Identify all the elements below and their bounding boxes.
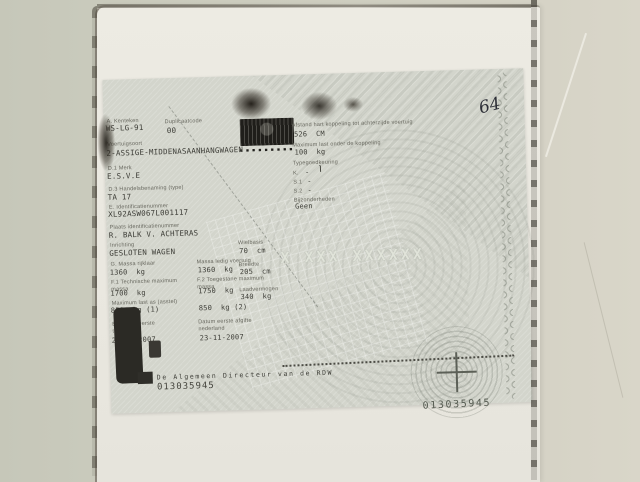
ghost-watermark-text: X XXX XXXXXX <box>280 247 425 266</box>
bijzonderheden-value: Geen <box>295 203 313 211</box>
laadvermogen-value: 340 kg <box>240 293 271 302</box>
security-stamp <box>240 118 295 146</box>
datum-afgifte-label: Datum eerste afgifte nederland <box>198 317 266 332</box>
k-label: K. <box>293 170 299 177</box>
tick-mark <box>320 166 321 172</box>
field-voertuigsoort-value: 2-ASSIGE-MIDDENASAANHANGWAGEN <box>106 146 243 158</box>
wielbasis-value: 70 cm <box>239 247 266 255</box>
s2-value: - <box>307 187 312 195</box>
document-number: 013035945 <box>157 381 215 393</box>
f1-value: 1700 kg <box>110 290 146 299</box>
typegoedkeuring-label: Typegoedkeuring <box>293 159 338 167</box>
dirt-stain <box>231 87 272 120</box>
s1-label: S.1 <box>293 179 302 186</box>
dirt-stain <box>96 114 116 172</box>
field-duplicaatcode-label: Duplicaatcode <box>165 118 203 126</box>
afstand-koppeling-value: 526 CM <box>294 131 325 140</box>
stamp-dot-row: ▪▪▪▪▪▪▪▪▪ <box>239 146 295 155</box>
signature-block-mark <box>138 372 153 384</box>
dark-print-mark <box>149 340 161 357</box>
breedte-value: 205 cm <box>240 268 271 277</box>
f2-value: 1750 kg <box>198 287 234 296</box>
field-handelsbenaming-value: TA 17 <box>108 193 132 202</box>
massa-rijklaar-value: 1360 kg <box>110 269 146 278</box>
k-value: - <box>305 169 310 177</box>
sleeve-left-edge-grime <box>92 6 97 476</box>
field-merk-value: E.S.V.E <box>107 172 140 181</box>
massa-ledig-value: 1360 kg <box>198 266 234 275</box>
massa-rijklaar-label: G. Massa rijklaar <box>110 260 190 269</box>
sleeve-top-edge-grime <box>97 4 531 8</box>
s1-value: - <box>307 178 312 186</box>
datum-afgifte-value: 23-11-2007 <box>200 334 244 343</box>
max-last-koppeling-value: 100 kg <box>294 149 325 158</box>
field-inrichting-value: GESLOTEN WAGEN <box>109 248 175 258</box>
field-plaats-id-value: R. BALK V. ACHTERAS <box>109 229 199 240</box>
wall-scratch <box>584 242 624 397</box>
max-last-as2-value: 850 kg (2) <box>199 304 248 313</box>
registration-document: X XXX XXXXXX A. Kenteken WS-LG-91 Duplic… <box>102 68 532 414</box>
field-identificatienummer-value: XL92ASW067L001117 <box>108 209 188 219</box>
field-duplicaatcode-value: 00 <box>167 127 177 136</box>
sleeve-right-edge-grime <box>531 0 537 480</box>
s2-label: S.2 <box>294 188 303 195</box>
wall-scratch <box>545 33 587 157</box>
